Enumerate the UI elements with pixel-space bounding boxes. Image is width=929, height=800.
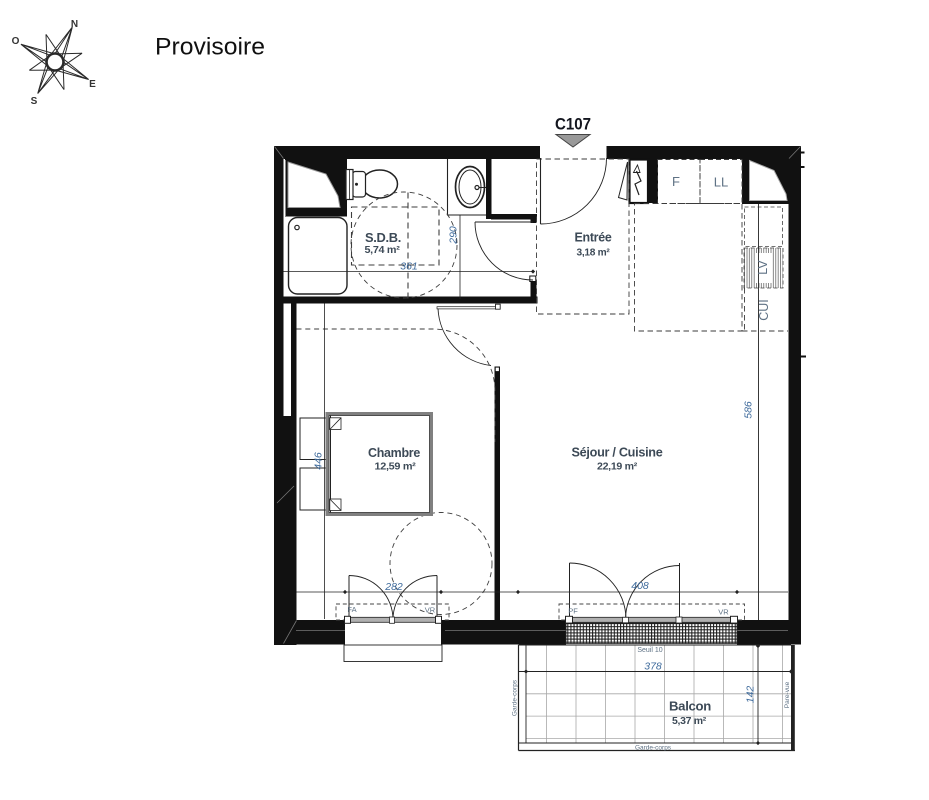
svg-text:378: 378 — [644, 661, 662, 673]
svg-text:282: 282 — [384, 581, 403, 593]
svg-text:586: 586 — [743, 401, 755, 419]
svg-text:LV: LV — [756, 260, 770, 275]
svg-text:Entrée: Entrée — [575, 230, 612, 245]
svg-text:3,18 m²: 3,18 m² — [577, 247, 611, 259]
svg-text:VR: VR — [718, 608, 729, 617]
svg-text:S: S — [31, 96, 38, 107]
svg-text:C107: C107 — [555, 115, 591, 134]
svg-text:361: 361 — [400, 261, 418, 273]
svg-text:LL: LL — [714, 175, 728, 190]
svg-text:142: 142 — [745, 686, 757, 704]
svg-text:S.D.B.: S.D.B. — [365, 231, 401, 245]
svg-text:E: E — [89, 79, 96, 90]
svg-text:N: N — [71, 19, 78, 30]
svg-text:Seuil 10: Seuil 10 — [637, 647, 662, 654]
svg-text:CUI: CUI — [757, 299, 771, 321]
svg-text:Chambre: Chambre — [368, 445, 420, 460]
svg-text:Séjour / Cuisine: Séjour / Cuisine — [572, 445, 663, 460]
svg-text:Garde-corps: Garde-corps — [635, 745, 672, 752]
svg-text:408: 408 — [631, 580, 649, 592]
svg-text:5,37 m²: 5,37 m² — [672, 715, 707, 727]
svg-text:Pare-vue: Pare-vue — [784, 681, 791, 708]
svg-text:5,74 m²: 5,74 m² — [365, 244, 401, 256]
svg-text:F: F — [672, 174, 680, 189]
svg-text:Provisoire: Provisoire — [155, 34, 265, 61]
svg-text:Garde-corps: Garde-corps — [512, 679, 519, 716]
svg-text:Balcon: Balcon — [669, 699, 711, 714]
svg-text:FA: FA — [347, 605, 356, 614]
svg-text:290: 290 — [448, 226, 460, 245]
svg-text:446: 446 — [313, 452, 325, 470]
svg-text:12,59 m²: 12,59 m² — [375, 461, 417, 473]
svg-text:O: O — [12, 36, 20, 47]
svg-text:22,19 m²: 22,19 m² — [597, 461, 638, 473]
svg-text:VR: VR — [425, 606, 436, 615]
svg-text:PF: PF — [568, 607, 578, 616]
